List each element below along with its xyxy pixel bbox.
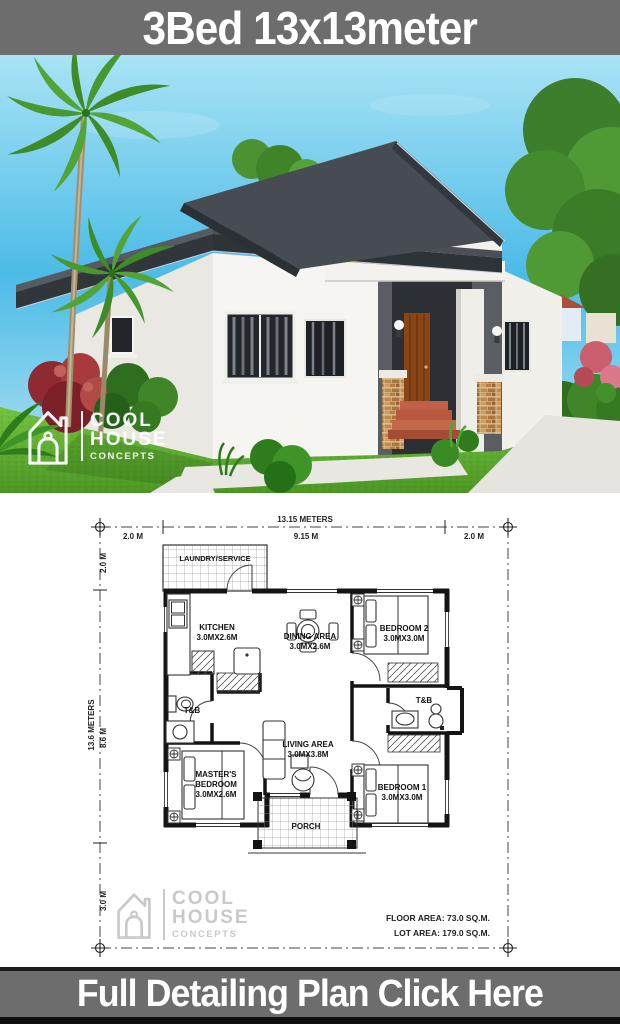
tb-right-fixtures [392, 704, 444, 730]
dim-top-total: 13.15 METERS [277, 515, 333, 524]
bedroom2-label: BEDROOM 2 [380, 624, 429, 633]
top-banner-title: 3Bed 13x13meter [143, 1, 477, 55]
logo-line2: HOUSE [90, 430, 168, 449]
left-small-window [111, 317, 133, 353]
dim-top-seg1: 9.15 M [294, 532, 319, 541]
wall-lamp-left [394, 320, 404, 330]
porch-label: PORCH [292, 822, 321, 831]
closets [217, 663, 440, 752]
dining-size: 3.0MX2.6M [290, 642, 331, 651]
entry-landing [400, 401, 448, 410]
dimension-left: 13.6 METERS 2.0 M 8.6 M 3.0 M [87, 553, 108, 911]
logo-line1: COOL [172, 889, 250, 908]
brand-watermark: COOL HOUSE CONCEPTS [22, 405, 168, 467]
lot-area-label: LOT AREA: 179.0 SQ.M. [394, 928, 490, 938]
stone-pillar-right [477, 382, 501, 434]
dim-left-total: 13.6 METERS [87, 699, 96, 751]
floor-plan: 13.15 METERS 2.0 M 9.15 M 2.0 M 13.6 MET… [0, 493, 620, 967]
logo-line3: CONCEPTS [90, 452, 168, 462]
bedroom1-label: BEDROOM 1 [378, 783, 427, 792]
master-line2: BEDROOM [195, 780, 237, 789]
bottom-banner-link[interactable]: Full Detailing Plan Click Here [0, 967, 620, 1024]
bedroom1-size: 3.0MX3.0M [382, 793, 423, 802]
kitchen-size: 3.0MX2.6M [197, 633, 238, 642]
bedroom2-size: 3.0MX3.0M [384, 634, 425, 643]
room-laundry: LAUNDRY/SERVICE [163, 545, 267, 591]
dim-left-seg0: 2.0 M [99, 553, 108, 573]
living-size: 3.0MX3.8M [288, 750, 329, 759]
house-render: COOL HOUSE CONCEPTS [0, 55, 620, 493]
front-window [222, 313, 298, 384]
floor-area-label: FLOOR AREA: 73.0 SQ.M. [386, 913, 490, 923]
living-label: LIVING AREA [282, 740, 333, 749]
dining-label: DINING AREA [284, 632, 337, 641]
top-banner: 3Bed 13x13meter [0, 0, 620, 57]
wall-lamp-right [492, 326, 502, 336]
tb-right-label: T&B [416, 696, 433, 705]
logo-line1: COOL [90, 411, 168, 430]
tb-left-label: T&B [184, 706, 201, 715]
master-line1: MASTER'S [195, 770, 237, 779]
dim-left-seg1: 8.6 M [99, 728, 108, 748]
laundry-label: LAUNDRY/SERVICE [179, 554, 250, 563]
master-size: 3.0MX2.6M [196, 790, 237, 799]
dimension-top: 13.15 METERS 2.0 M 9.15 M 2.0 M [123, 515, 484, 541]
house-logo-icon [112, 888, 156, 941]
dim-top-seg0: 2.0 M [123, 532, 143, 541]
bottom-banner-label: Full Detailing Plan Click Here [77, 973, 543, 1016]
dim-left-seg2: 3.0 M [99, 891, 108, 911]
brand-watermark-plan: COOL HOUSE CONCEPTS [112, 888, 250, 941]
logo-line2: HOUSE [172, 908, 250, 927]
floor-plan-svg: 13.15 METERS 2.0 M 9.15 M 2.0 M 13.6 MET… [0, 493, 620, 967]
kitchen-label: KITCHEN [199, 623, 235, 632]
logo-line3: CONCEPTS [172, 930, 250, 940]
house-logo-icon [22, 405, 74, 467]
dim-top-seg2: 2.0 M [464, 532, 484, 541]
pin-image: 3Bed 13x13meter [0, 0, 620, 1024]
entry-side-window [305, 320, 345, 377]
